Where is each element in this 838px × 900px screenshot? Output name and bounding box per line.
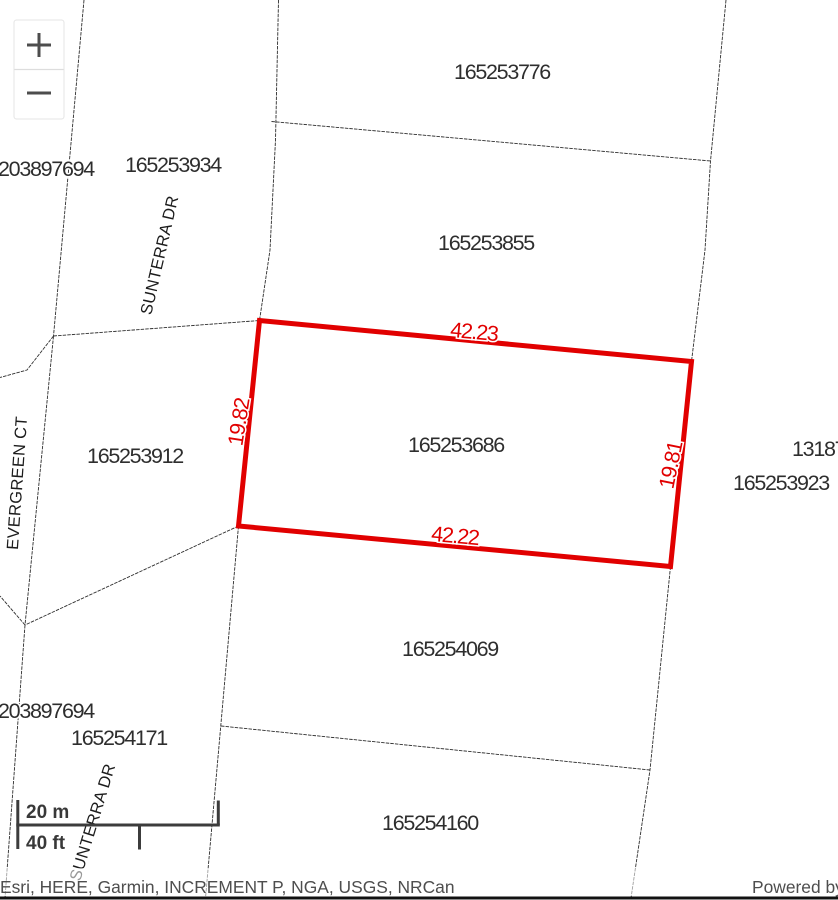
svg-text:203897694: 203897694 bbox=[0, 699, 95, 723]
svg-text:Esri, HERE, Garmin, INCREMENT: Esri, HERE, Garmin, INCREMENT P, NGA, US… bbox=[0, 877, 455, 897]
svg-text:165254069: 165254069 bbox=[402, 637, 498, 661]
svg-text:165254171: 165254171 bbox=[71, 726, 167, 750]
svg-text:42.22: 42.22 bbox=[430, 522, 480, 550]
svg-text:165253855: 165253855 bbox=[438, 231, 535, 255]
svg-text:165253912: 165253912 bbox=[87, 444, 183, 468]
svg-text:Powered by: Powered by bbox=[752, 877, 838, 897]
svg-text:165254160: 165254160 bbox=[382, 811, 479, 835]
svg-text:203897694: 203897694 bbox=[0, 157, 95, 181]
svg-text:165253686: 165253686 bbox=[408, 433, 505, 457]
svg-text:165253776: 165253776 bbox=[454, 60, 551, 84]
svg-text:165253923: 165253923 bbox=[733, 471, 830, 495]
svg-text:13187: 13187 bbox=[792, 437, 838, 461]
svg-text:20 m: 20 m bbox=[26, 802, 69, 823]
svg-text:42.23: 42.23 bbox=[449, 318, 500, 346]
svg-text:40 ft: 40 ft bbox=[26, 833, 66, 854]
svg-text:165253934: 165253934 bbox=[125, 153, 222, 177]
